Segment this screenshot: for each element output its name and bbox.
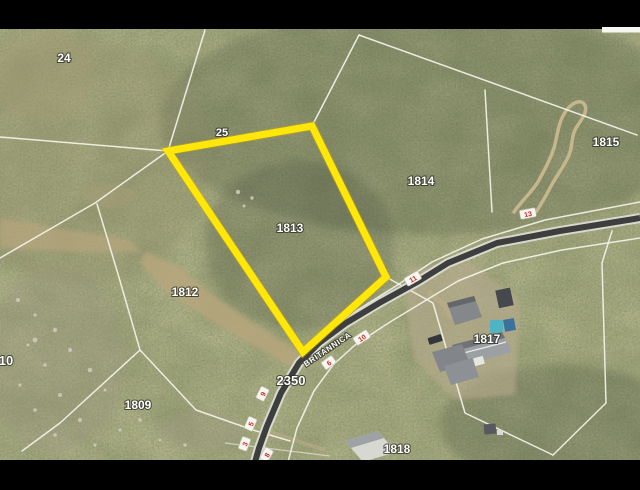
aerial-map-screenshot: 13 11 10 6 9 5 3 8 24 25 1815 1814 1813	[0, 0, 640, 490]
parcel-label-1809: 1809	[125, 398, 152, 412]
outbuilding	[484, 423, 497, 434]
image-edge-sliver	[602, 27, 640, 33]
parcel-label-1815: 1815	[593, 135, 620, 149]
letterbox-top	[0, 0, 640, 29]
parcel-label-1813: 1813	[277, 221, 304, 235]
parcel-label-1817: 1817	[474, 332, 501, 346]
outbuilding-small	[497, 430, 503, 435]
aerial-map-image: 13 11 10 6 9 5 3 8 24 25 1815 1814 1813	[0, 0, 640, 490]
parcel-label-1818: 1818	[384, 442, 411, 456]
pool-dark	[503, 318, 516, 332]
parcel-label-25: 25	[216, 127, 228, 139]
parcel-label-10: 10	[0, 353, 13, 368]
parcel-label-2350: 2350	[277, 373, 306, 388]
letterbox-bottom	[0, 460, 640, 490]
parcel-label-1814: 1814	[408, 174, 435, 188]
road-marker-text: 13	[524, 211, 533, 219]
parcel-label-24: 24	[57, 51, 71, 65]
parcel-label-1812: 1812	[172, 285, 199, 299]
